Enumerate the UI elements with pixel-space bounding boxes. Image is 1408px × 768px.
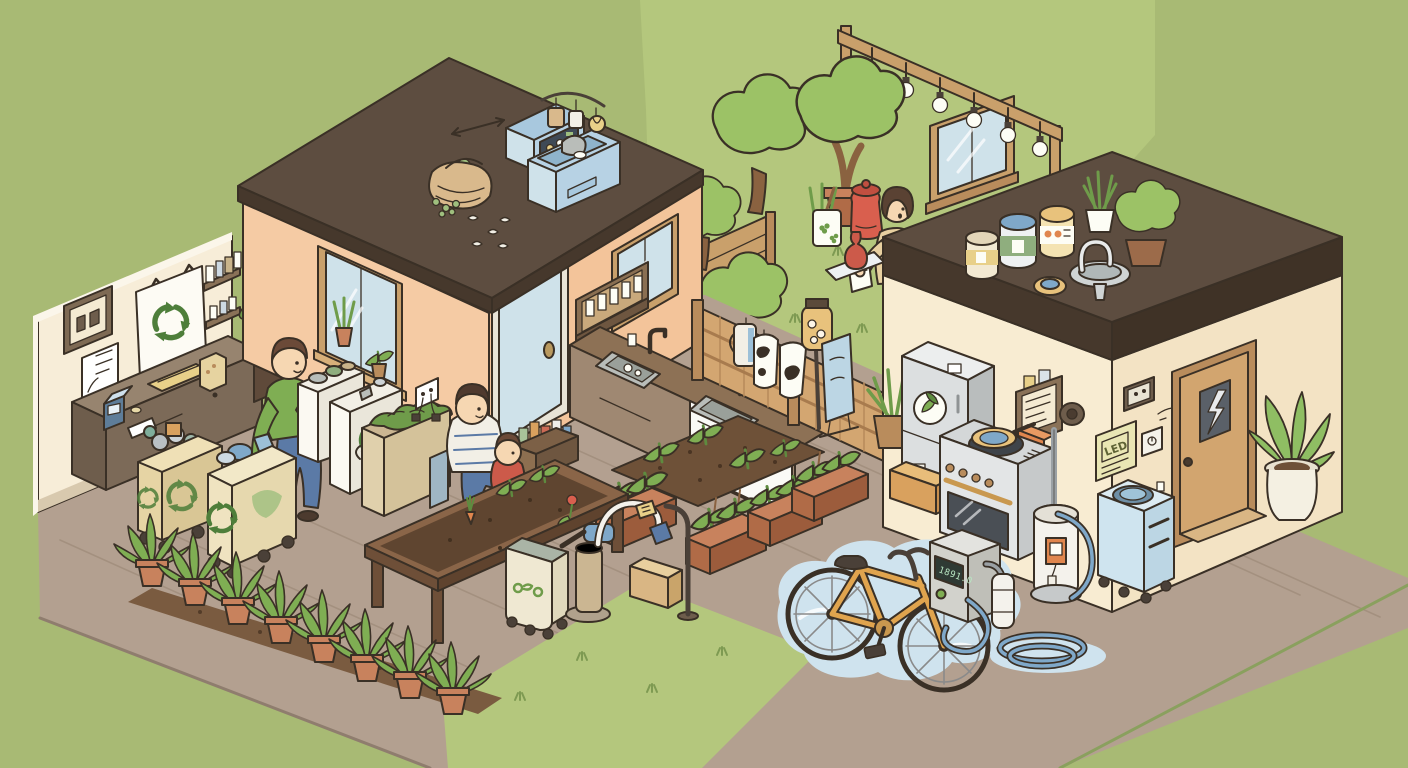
small-blue-bin: [430, 450, 448, 508]
entry-door: [1172, 340, 1266, 548]
lightning-window: [1200, 380, 1230, 442]
round-wall-meter: [1060, 403, 1084, 425]
coin: [131, 407, 141, 413]
rolling-compost-bin: [506, 538, 568, 639]
soap-dispenser: [628, 334, 636, 346]
leaf-logo-icon: [914, 392, 946, 424]
indicator-light: [937, 590, 946, 599]
scene-canvas: LED: [0, 0, 1408, 768]
door-knob: [1184, 458, 1192, 466]
red-compost-bin: [851, 180, 882, 239]
eco-home-illustration: LED: [0, 0, 1408, 768]
detergent-carton: [200, 353, 226, 391]
bike-seat: [835, 556, 867, 569]
